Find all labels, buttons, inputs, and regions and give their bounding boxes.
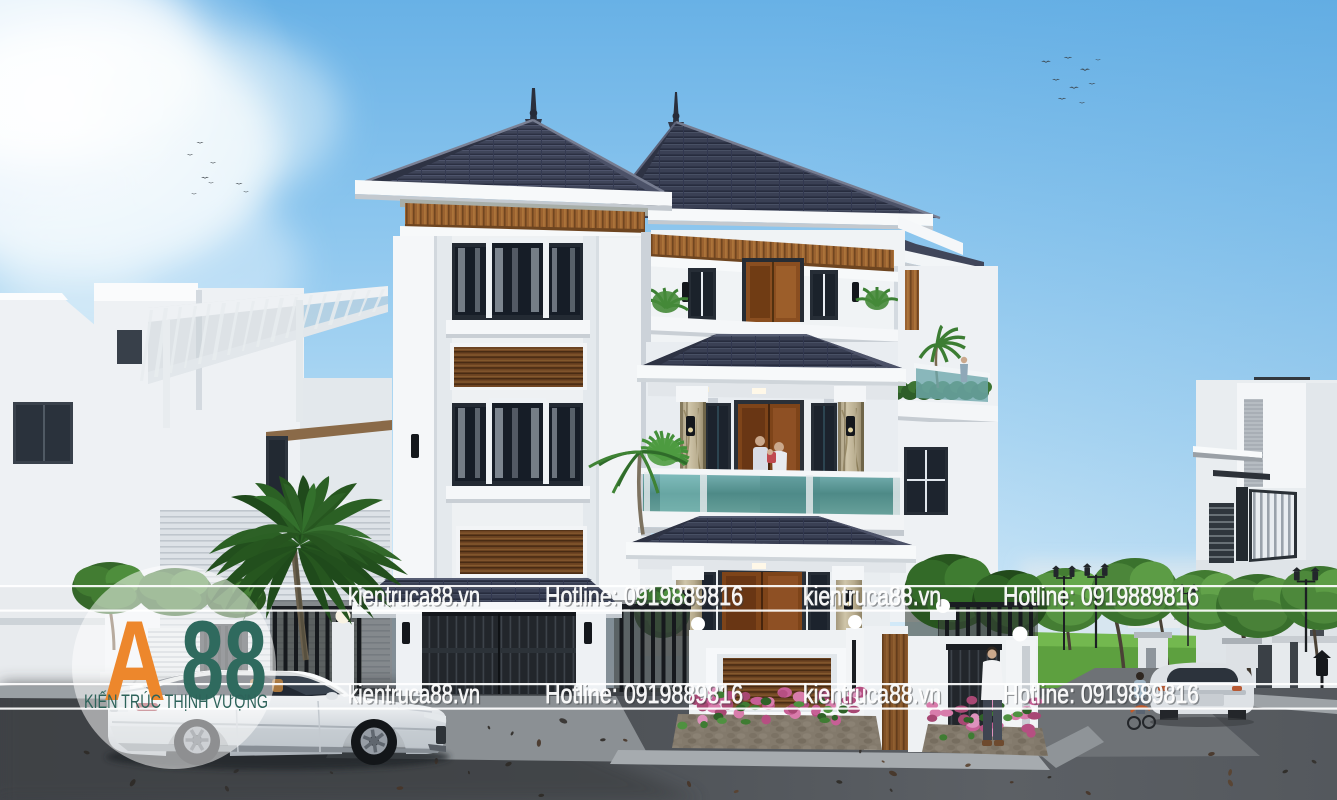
- svg-text:kientruca88.vn: kientruca88.vn: [803, 679, 941, 709]
- svg-text:kientruca88.vn: kientruca88.vn: [348, 581, 480, 611]
- svg-text:Hotline: 0919889816: Hotline: 0919889816: [545, 581, 743, 611]
- svg-text:KIẾN TRÚC THỊNH VƯỢNG: KIẾN TRÚC THỊNH VƯỢNG: [84, 691, 268, 713]
- svg-text:Hotline: 0919889816: Hotline: 0919889816: [1003, 679, 1199, 709]
- svg-text:Hotline: 0919889816: Hotline: 0919889816: [545, 679, 743, 709]
- svg-text:kientruca88.vn: kientruca88.vn: [803, 581, 941, 611]
- svg-text:Hotline: 0919889816: Hotline: 0919889816: [1003, 581, 1199, 611]
- svg-text:kientruca88.vn: kientruca88.vn: [348, 679, 480, 709]
